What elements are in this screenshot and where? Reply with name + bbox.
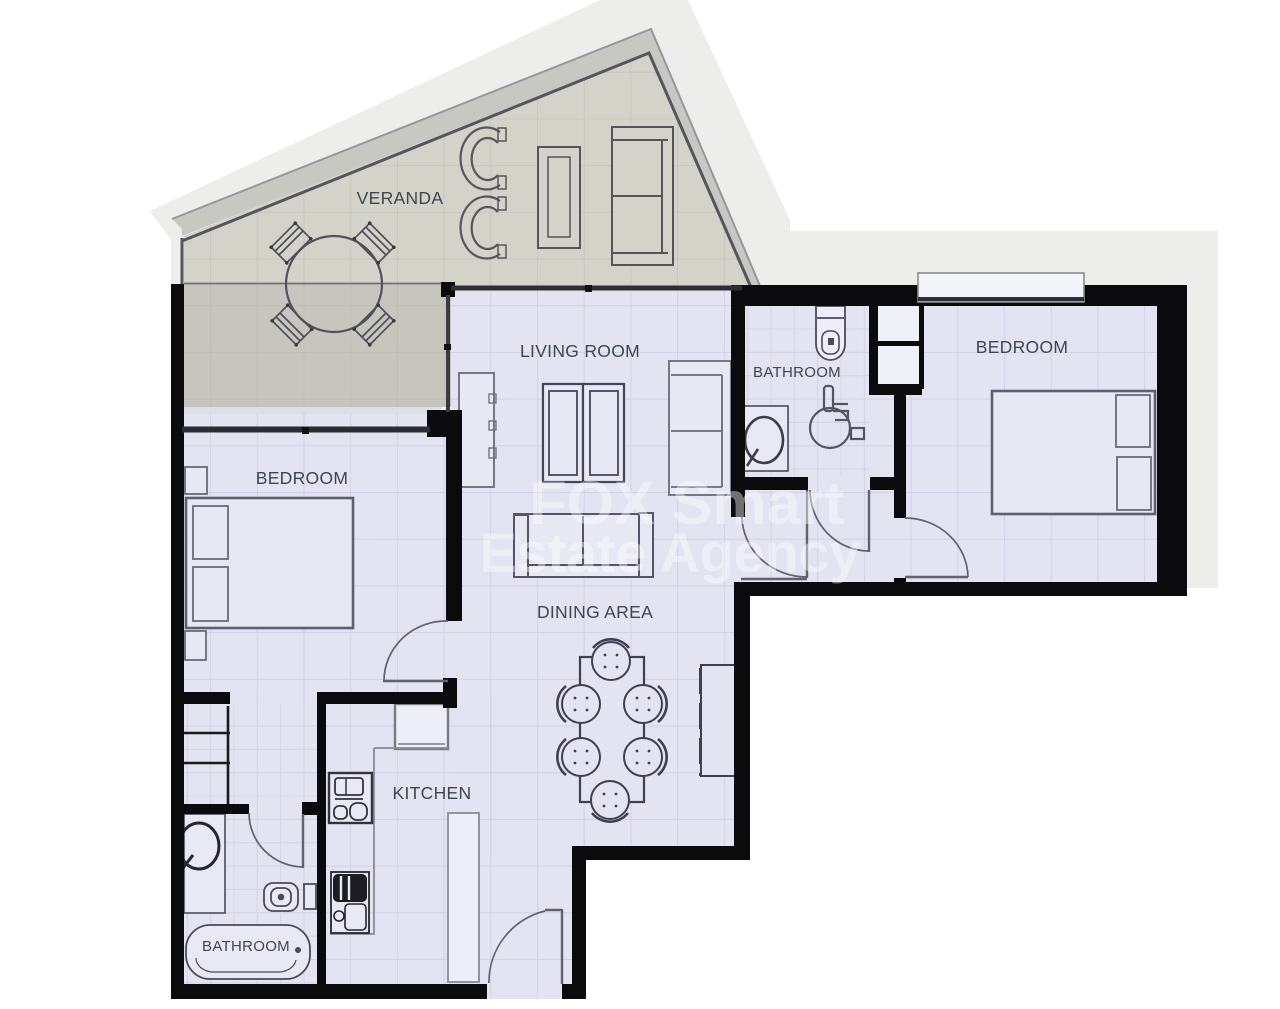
svg-text:BEDROOM: BEDROOM [256, 468, 349, 488]
svg-text:DINING AREA: DINING AREA [537, 602, 653, 622]
svg-text:Estate Agency: Estate Agency [480, 522, 861, 584]
svg-text:BATHROOM: BATHROOM [753, 364, 841, 381]
svg-text:BATHROOM: BATHROOM [202, 938, 290, 955]
svg-text:VERANDA: VERANDA [357, 188, 444, 208]
svg-text:KITCHEN: KITCHEN [393, 783, 472, 803]
svg-text:LIVING ROOM: LIVING ROOM [520, 341, 640, 361]
svg-text:BEDROOM: BEDROOM [976, 337, 1069, 357]
